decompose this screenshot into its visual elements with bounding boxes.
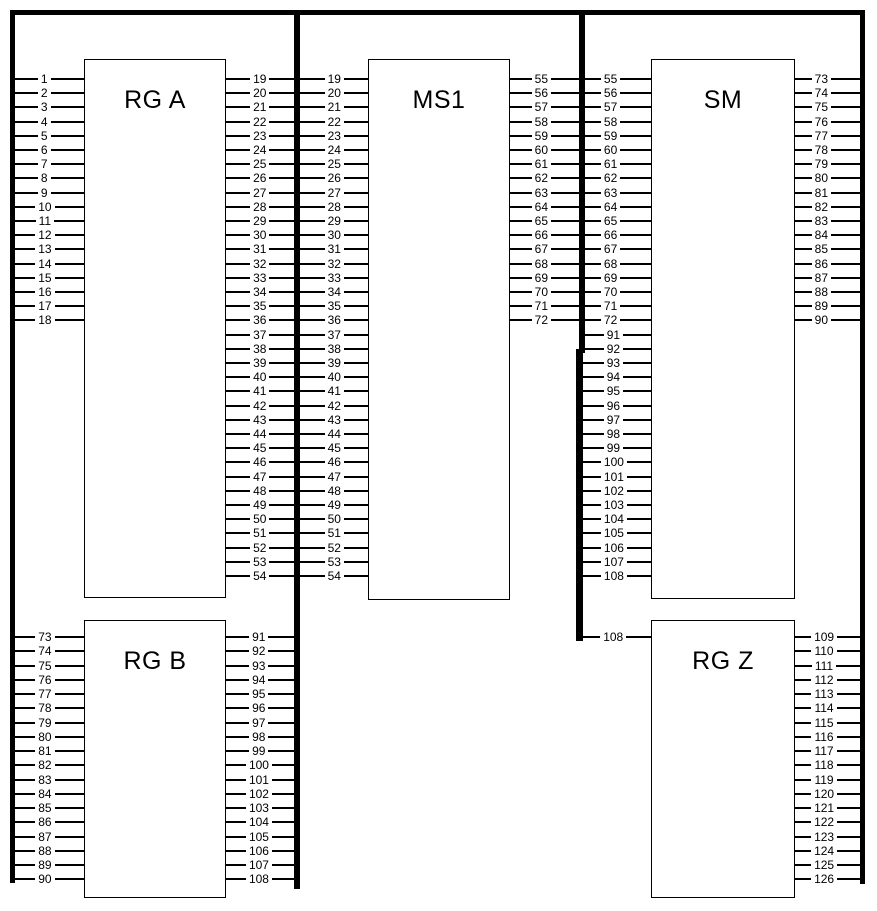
pin-line: [15, 78, 38, 80]
pin-line: [509, 92, 532, 94]
column-divider-rga-ms1: [294, 10, 300, 889]
pin-line: [55, 650, 85, 652]
pin-label: 86: [812, 258, 831, 270]
pin-line: [268, 750, 295, 752]
pin-line: [15, 177, 38, 179]
box-title-rg-b: RG B: [85, 647, 225, 676]
pin-row-rg-b-left: 89: [15, 858, 85, 872]
pin-label: 31: [250, 243, 269, 255]
pin-line: [225, 665, 249, 667]
pin-line: [794, 234, 812, 236]
pin-line: [225, 263, 250, 265]
pin-label: 72: [601, 314, 620, 326]
pin-label: 18: [35, 314, 54, 326]
pin-line: [509, 135, 532, 137]
pin-row-rg-z-right: 115: [794, 716, 861, 730]
pin-row-sm-right: 84: [794, 228, 861, 242]
pin-line: [794, 764, 811, 766]
pin-row-rg-b-left: 88: [15, 844, 85, 858]
pin-label: 104: [601, 513, 627, 525]
pin-row-sm-left-lower: 103: [583, 498, 652, 512]
pin-row-rg-a-left: 13: [15, 242, 85, 256]
pin-line: [225, 376, 250, 378]
box-sm: SM: [651, 59, 795, 599]
pin-label: 58: [601, 116, 620, 128]
pin-line: [620, 220, 652, 222]
pin-line: [831, 163, 861, 165]
pin-label: 56: [532, 87, 551, 99]
pin-line: [15, 263, 35, 265]
pin-row-sm-left-lower: 91: [583, 328, 652, 342]
pin-line: [620, 106, 652, 108]
pin-line: [583, 547, 601, 549]
pin-line: [620, 177, 652, 179]
pin-label: 23: [250, 130, 269, 142]
pin-line: [831, 192, 861, 194]
pin-label: 78: [35, 702, 54, 714]
pin-line: [225, 177, 250, 179]
pin-row-sm-right: 88: [794, 285, 861, 299]
pin-label: 93: [604, 357, 623, 369]
pin-line: [55, 864, 85, 866]
pin-label: 126: [811, 873, 837, 885]
pin-line: [225, 779, 246, 781]
pin-line: [831, 149, 861, 151]
pin-row-rg-b-right: 108: [225, 872, 295, 886]
pin-line: [225, 348, 250, 350]
pin-line: [551, 92, 601, 94]
pin-line: [620, 319, 652, 321]
pin-line: [268, 722, 295, 724]
pin-line: [15, 764, 35, 766]
pin-row-sm-right: 87: [794, 271, 861, 285]
pin-line: [551, 135, 601, 137]
pin-line: [225, 821, 246, 823]
pin-line: [344, 192, 369, 194]
pin-line: [344, 419, 369, 421]
pin-line: [344, 121, 369, 123]
pin-line: [551, 305, 601, 307]
pin-row-rg-a-left: 5: [15, 129, 85, 143]
pin-row-sm-left-lower: 106: [583, 541, 652, 555]
pin-label: 42: [325, 400, 344, 412]
pin-label: 51: [250, 527, 269, 539]
pin-line: [225, 736, 249, 738]
pin-label: 38: [325, 343, 344, 355]
pin-label: 52: [325, 542, 344, 554]
pin-line: [620, 135, 652, 137]
pin-line: [225, 793, 246, 795]
pin-label: 98: [249, 731, 268, 743]
pin-line: [551, 319, 601, 321]
pin-label: 19: [325, 73, 344, 85]
pin-line: [837, 850, 861, 852]
pin-row-sm-left-lower: 101: [583, 470, 652, 484]
pin-line: [344, 461, 369, 463]
pin-label: 71: [601, 300, 620, 312]
pin-row-rg-a-left: 7: [15, 157, 85, 171]
pin-line: [509, 319, 532, 321]
pin-line: [15, 864, 35, 866]
pin-label: 80: [35, 731, 54, 743]
pin-line: [15, 135, 38, 137]
pin-line: [551, 149, 601, 151]
pin-row-rg-z-right: 118: [794, 758, 861, 772]
pin-line: [794, 248, 812, 250]
pin-label: 32: [250, 258, 269, 270]
pin-label: 27: [250, 187, 269, 199]
pin-row-rg-a-left: 17: [15, 299, 85, 313]
pin-label: 40: [250, 371, 269, 383]
pin-label: 57: [532, 101, 551, 113]
pin-row-rg-b-right: 104: [225, 815, 295, 829]
pin-line: [831, 319, 861, 321]
pin-line: [15, 665, 35, 667]
pin-line: [551, 192, 601, 194]
pin-line: [794, 850, 811, 852]
pin-label: 73: [35, 631, 54, 643]
pin-label: 60: [601, 144, 620, 156]
pin-line: [583, 376, 604, 378]
pin-line: [794, 722, 811, 724]
pin-line: [551, 248, 601, 250]
pin-line: [272, 878, 295, 880]
pin-line: [623, 362, 652, 364]
pin-line: [583, 461, 601, 463]
pin-row-sm-right: 80: [794, 171, 861, 185]
pin-line: [344, 92, 369, 94]
pin-label: 45: [250, 442, 269, 454]
pin-line: [509, 149, 532, 151]
pin-row-rg-b-left: 81: [15, 744, 85, 758]
pin-line: [551, 234, 601, 236]
pin-line: [583, 532, 601, 534]
pin-line: [627, 518, 652, 520]
pin-label: 74: [812, 87, 831, 99]
pin-label: 75: [35, 660, 54, 672]
pin-label: 66: [601, 229, 620, 241]
pin-label: 87: [812, 272, 831, 284]
pin-line: [15, 821, 35, 823]
pin-label: 62: [532, 172, 551, 184]
pin-label: 26: [250, 172, 269, 184]
pin-label: 95: [604, 385, 623, 397]
pin-line: [55, 793, 85, 795]
pin-label: 67: [532, 243, 551, 255]
pin-line: [344, 447, 369, 449]
pin-row-rg-z-right: 109: [794, 630, 861, 644]
pin-line: [583, 561, 601, 563]
pin-label: 76: [35, 674, 54, 686]
pin-label: 65: [532, 215, 551, 227]
pin-line: [51, 121, 85, 123]
pin-line: [344, 490, 369, 492]
pin-line: [344, 334, 369, 336]
pin-line: [794, 305, 812, 307]
pin-line: [583, 518, 601, 520]
pin-row-rg-a-left: 18: [15, 313, 85, 327]
pin-row-sm-left-lower: 99: [583, 441, 652, 455]
pin-line: [51, 92, 85, 94]
pin-line: [831, 177, 861, 179]
pin-label: 82: [812, 201, 831, 213]
pin-row-sm-right: 79: [794, 157, 861, 171]
pin-label: 36: [325, 314, 344, 326]
pin-line: [344, 234, 369, 236]
pin-label: 53: [250, 556, 269, 568]
pin-row-rg-a-left: 3: [15, 100, 85, 114]
pin-line: [831, 206, 861, 208]
pin-label: 35: [325, 300, 344, 312]
pin-line: [15, 121, 38, 123]
pin-line: [225, 433, 250, 435]
pin-row-rg-z-left: 108: [583, 630, 652, 644]
pin-line: [344, 163, 369, 165]
pin-row-rg-a-left: 6: [15, 143, 85, 157]
frame-border-left: [10, 10, 15, 883]
pin-label: 91: [604, 329, 623, 341]
pin-row-rg-b-left: 79: [15, 716, 85, 730]
column-divider-ms1-sm-lower: [576, 349, 583, 641]
pin-row-sm-left-lower: 105: [583, 526, 652, 540]
pin-line: [15, 206, 35, 208]
pin-line: [344, 291, 369, 293]
pin-label: 82: [35, 759, 54, 771]
pin-row-rg-z-right: 125: [794, 858, 861, 872]
pin-line: [831, 92, 861, 94]
pin-row-rg-b-left: 73: [15, 630, 85, 644]
pin-line: [837, 693, 861, 695]
pin-line: [55, 263, 85, 265]
pin-row-rg-b-right: 91: [225, 630, 295, 644]
pin-label: 70: [601, 286, 620, 298]
pin-line: [794, 149, 812, 151]
pin-label: 86: [35, 816, 54, 828]
pin-row-rg-b-right: 100: [225, 758, 295, 772]
pin-line: [627, 547, 652, 549]
pin-label: 63: [532, 187, 551, 199]
pin-label: 63: [601, 187, 620, 199]
pin-line: [225, 679, 249, 681]
pin-line: [344, 305, 369, 307]
pin-line: [623, 433, 652, 435]
pin-line: [51, 177, 85, 179]
pin-line: [344, 177, 369, 179]
pin-label: 49: [325, 499, 344, 511]
pin-label: 22: [325, 116, 344, 128]
pin-line: [837, 793, 861, 795]
pin-line: [344, 263, 369, 265]
pin-row-rg-z-right: 124: [794, 844, 861, 858]
pin-line: [794, 78, 812, 80]
pin-label: 45: [325, 442, 344, 454]
pin-label: 50: [250, 513, 269, 525]
pin-line: [344, 248, 369, 250]
pin-row-rg-z-right: 120: [794, 787, 861, 801]
pin-line: [272, 864, 295, 866]
pin-row-rg-b-left: 80: [15, 730, 85, 744]
pin-line: [225, 764, 246, 766]
pin-row-sm-right: 89: [794, 299, 861, 313]
pin-row-rg-a-left: 2: [15, 86, 85, 100]
pin-line: [794, 679, 811, 681]
pin-line: [15, 636, 35, 638]
pin-row-sm-right: 75: [794, 100, 861, 114]
pin-label: 92: [604, 343, 623, 355]
pin-line: [551, 206, 601, 208]
pin-line: [51, 163, 85, 165]
pin-label: 47: [325, 471, 344, 483]
pin-row-rg-z-right: 111: [794, 659, 861, 673]
pin-line: [268, 636, 295, 638]
pin-label: 101: [601, 471, 627, 483]
pin-label: 33: [325, 272, 344, 284]
pin-line: [55, 291, 85, 293]
pin-label: 111: [812, 660, 836, 672]
pin-line: [551, 263, 601, 265]
pin-label: 89: [812, 300, 831, 312]
pin-line: [55, 807, 85, 809]
pin-label: 58: [532, 116, 551, 128]
pin-line: [225, 405, 250, 407]
pin-label: 103: [601, 499, 627, 511]
pin-label: 122: [811, 816, 837, 828]
pin-line: [225, 504, 250, 506]
pin-line: [55, 878, 85, 880]
pin-label: 57: [601, 101, 620, 113]
box-title-rg-z: RG Z: [652, 647, 794, 676]
pin-row-rg-a-left: 4: [15, 115, 85, 129]
pin-line: [837, 679, 861, 681]
pin-line: [15, 163, 38, 165]
pin-row-rg-z-right: 121: [794, 801, 861, 815]
pin-row-rg-b-left: 84: [15, 787, 85, 801]
pin-row-rg-b-left: 74: [15, 644, 85, 658]
pin-line: [344, 532, 369, 534]
pin-label: 68: [601, 258, 620, 270]
pin-line: [225, 78, 250, 80]
pin-line: [509, 305, 532, 307]
pin-label: 31: [325, 243, 344, 255]
pin-row-rg-b-left: 87: [15, 830, 85, 844]
pin-line: [15, 92, 38, 94]
pin-line: [15, 878, 35, 880]
pin-line: [794, 793, 811, 795]
pin-row-rg-b-right: 94: [225, 673, 295, 687]
pin-line: [225, 836, 246, 838]
pin-row-rg-a-left: 16: [15, 285, 85, 299]
pin-line: [225, 807, 246, 809]
pin-line: [225, 419, 250, 421]
pin-label: 17: [35, 300, 54, 312]
pin-line: [583, 636, 600, 638]
pin-label: 52: [250, 542, 269, 554]
pin-label: 98: [604, 428, 623, 440]
pin-label: 44: [325, 428, 344, 440]
pin-label: 100: [246, 759, 272, 771]
pin-row-rg-b-left: 75: [15, 659, 85, 673]
pin-row-rg-b-right: 95: [225, 687, 295, 701]
pin-label: 81: [35, 745, 54, 757]
pin-line: [225, 234, 250, 236]
pin-label: 6: [38, 144, 51, 156]
pin-label: 46: [250, 456, 269, 468]
pin-row-rg-a-left: 1: [15, 72, 85, 86]
pin-line: [55, 821, 85, 823]
pin-row-rg-z-right: 126: [794, 872, 861, 886]
pin-line: [15, 192, 38, 194]
pin-label: 85: [35, 802, 54, 814]
pin-label: 72: [532, 314, 551, 326]
pin-label: 8: [38, 172, 51, 184]
pin-label: 100: [601, 456, 627, 468]
pin-line: [627, 504, 652, 506]
pin-row-sm-left-lower: 107: [583, 555, 652, 569]
pin-line: [225, 149, 250, 151]
pin-label: 67: [601, 243, 620, 255]
pin-line: [344, 106, 369, 108]
pin-label: 109: [811, 631, 837, 643]
pin-line: [509, 220, 532, 222]
pin-line: [225, 707, 249, 709]
pin-line: [837, 779, 861, 781]
pin-label: 41: [325, 385, 344, 397]
pin-label: 94: [249, 674, 268, 686]
frame-border-right: [860, 10, 865, 884]
pin-line: [583, 362, 604, 364]
pin-row-rg-b-left: 77: [15, 687, 85, 701]
pin-label: 69: [532, 272, 551, 284]
pin-label: 76: [812, 116, 831, 128]
pin-label: 99: [249, 745, 268, 757]
pin-label: 26: [325, 172, 344, 184]
pin-row-sm-right: 82: [794, 200, 861, 214]
pin-line: [831, 248, 861, 250]
pin-label: 73: [812, 73, 831, 85]
pin-line: [583, 476, 601, 478]
pin-line: [54, 220, 85, 222]
pin-row-sm-left-lower: 95: [583, 384, 652, 398]
pin-line: [225, 447, 250, 449]
pin-label: 19: [250, 73, 269, 85]
pin-label: 14: [35, 258, 54, 270]
pin-line: [55, 319, 85, 321]
pin-line: [225, 334, 250, 336]
pin-label: 59: [532, 130, 551, 142]
pin-line: [837, 878, 861, 880]
pin-label: 88: [35, 845, 54, 857]
pin-label: 3: [38, 101, 51, 113]
pin-line: [620, 192, 652, 194]
pin-label: 79: [35, 717, 54, 729]
pin-line: [268, 650, 295, 652]
pin-row-rg-b-left: 78: [15, 701, 85, 715]
pin-line: [225, 206, 250, 208]
pin-line: [794, 807, 811, 809]
pin-label: 25: [325, 158, 344, 170]
pin-line: [344, 561, 369, 563]
pin-label: 55: [532, 73, 551, 85]
pin-line: [15, 836, 35, 838]
pin-label: 74: [35, 645, 54, 657]
pin-label: 21: [325, 101, 344, 113]
pin-row-rg-a-left: 8: [15, 171, 85, 185]
pin-label: 55: [601, 73, 620, 85]
pin-label: 84: [35, 788, 54, 800]
pin-line: [794, 177, 812, 179]
pin-label: 20: [325, 87, 344, 99]
pin-line: [344, 149, 369, 151]
